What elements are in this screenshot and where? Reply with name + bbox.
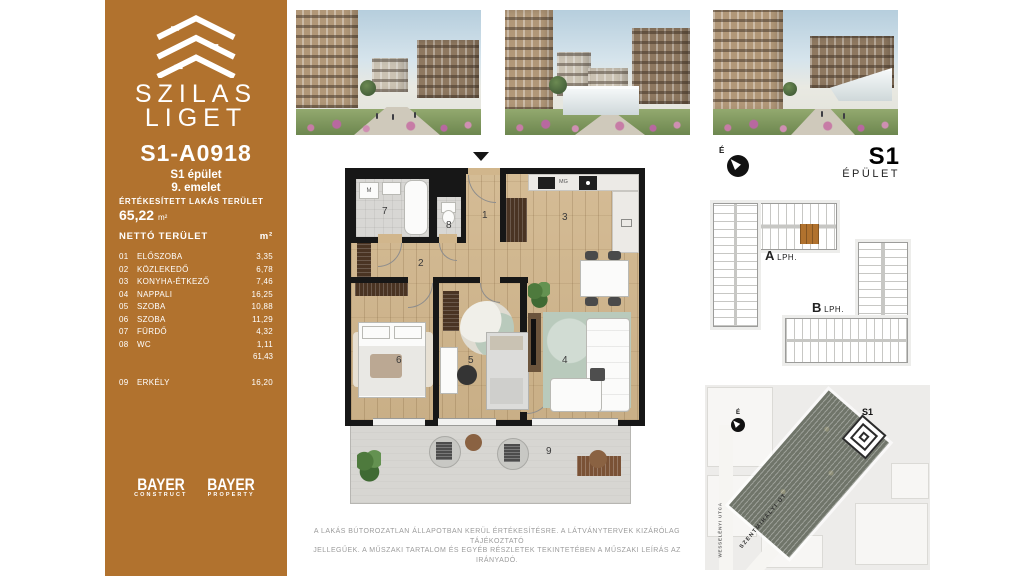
bathroom-sink — [382, 182, 401, 195]
compass-label: É — [719, 146, 724, 155]
stairwell-b-text: LPH. — [824, 305, 844, 314]
entry-wardrobe — [506, 198, 527, 242]
sold-area-unit: m² — [158, 213, 167, 222]
table-row: 01ELŐSZOBA3,35 — [119, 252, 273, 261]
row-area: 10,88 — [239, 302, 273, 311]
map-building — [855, 503, 928, 565]
stairwell-b-letter: B — [812, 300, 821, 315]
apartment-floorplan: M MG — [340, 150, 650, 510]
balcony-round-table — [589, 450, 607, 468]
room-divider-wall — [520, 412, 527, 420]
row-name: WC — [137, 340, 239, 349]
balcony-table — [465, 434, 482, 451]
room5-wardrobe — [443, 291, 459, 331]
bayer-construct-logo: BAYER CONSTRUCT — [132, 477, 190, 499]
row-num: 02 — [119, 265, 137, 274]
building-word: ÉPÜLET — [815, 168, 900, 180]
szilas-liget-roof-logo-icon — [150, 12, 242, 78]
compass-icon — [727, 155, 749, 177]
row-num: 04 — [119, 290, 137, 299]
desk-chair — [457, 365, 477, 385]
room-number-3: 3 — [562, 212, 568, 223]
balcony-door — [532, 418, 618, 426]
stairwell-a-letter: A — [765, 248, 774, 263]
desk — [440, 347, 458, 394]
corridor-wall — [433, 277, 480, 283]
bathroom-door-opening — [378, 234, 402, 243]
room-number-8: 8 — [446, 220, 452, 231]
render-building — [632, 28, 690, 104]
single-bed-pillow — [490, 336, 523, 350]
room-divider-wall — [433, 283, 439, 420]
compass-needle — [728, 156, 741, 170]
site-map: S1 É SZENTMIHÁLYI ÚT WESSELÉNYI UTCA — [705, 385, 930, 570]
highlighted-unit — [800, 224, 819, 244]
row-area: 1,11 — [239, 340, 273, 349]
microwave-label: MG — [559, 179, 568, 185]
lounge-cushion — [504, 444, 520, 462]
render-pavilion — [563, 86, 639, 115]
row-num: 06 — [119, 315, 137, 324]
render-building — [296, 10, 358, 108]
building-code: S1 — [815, 146, 900, 168]
street-label-side: WESSELÉNYI UTCA — [718, 502, 723, 557]
row-area: 6,78 — [239, 265, 273, 274]
room-number-1: 1 — [482, 210, 488, 221]
entrance-arrow-icon — [473, 152, 489, 161]
brand-line2: LIGET — [105, 106, 287, 130]
unit-id: S1-A0918 — [105, 140, 287, 167]
map-marker-label: S1 — [862, 407, 873, 417]
row-num: 09 — [119, 378, 137, 387]
wing-b-horizontal — [785, 318, 908, 363]
dining-chair — [585, 297, 598, 306]
sofa-pillow — [590, 368, 605, 381]
dining-chair — [585, 251, 598, 260]
balcony-door — [438, 418, 496, 426]
pillow — [362, 326, 390, 339]
wc-door-opening — [439, 234, 457, 243]
render-building — [417, 40, 479, 98]
table-row: 04NAPPALI16,25 — [119, 290, 273, 299]
sofa-chaise — [550, 378, 602, 412]
table-row: 03KONYHA-ÉTKEZŐ7,46 — [119, 277, 273, 286]
bayer-property-logo: BAYER PROPERTY — [202, 477, 260, 499]
map-compass-label: É — [736, 410, 740, 416]
sink-dot — [586, 181, 590, 185]
balcony-row: 09ERKÉLY16,20 — [119, 378, 273, 387]
row-name: FÜRDŐ — [137, 327, 239, 336]
table-header-label: NETTÓ TERÜLET — [119, 231, 208, 242]
logo-wordmark: BAYER — [207, 477, 255, 492]
table-row: 08WC1,11 — [119, 340, 273, 349]
logo-wordmark: BAYER — [137, 477, 185, 492]
row-name: KÖZLEKEDŐ — [137, 265, 239, 274]
row-area: 16,20 — [239, 378, 273, 387]
washing-machine: M — [359, 182, 379, 199]
stairwell-b-label: B LPH. — [812, 300, 844, 315]
brand-name: SZILAS LIGET — [105, 82, 287, 130]
building-floor: S1 épület 9. emelet — [105, 169, 287, 195]
room-number-5: 5 — [468, 355, 474, 366]
building-name: S1 épület — [105, 169, 287, 182]
row-name: SZOBA — [137, 315, 239, 324]
row-name: SZOBA — [137, 302, 239, 311]
map-building — [891, 463, 929, 499]
window — [373, 418, 425, 426]
bathtub — [404, 180, 428, 235]
brand-line1: SZILAS — [105, 82, 287, 106]
area-table-header: NETTÓ TERÜLET m² — [119, 231, 273, 242]
wing-a-vertical — [713, 203, 758, 327]
sold-area-number: 65,22 — [119, 207, 154, 223]
row-area: 4,32 — [239, 327, 273, 336]
room-number-2: 2 — [418, 258, 424, 269]
dining-chair — [608, 251, 621, 260]
row-area: 7,46 — [239, 277, 273, 286]
marker-inner-ring — [850, 423, 878, 451]
corridor-wardrobe — [357, 243, 371, 277]
row-num: 03 — [119, 277, 137, 286]
row-area: 16,25 — [239, 290, 273, 299]
exterior-render-3 — [713, 10, 898, 135]
map-compass-icon — [731, 418, 745, 432]
building-title: S1 ÉPÜLET — [815, 146, 900, 180]
pillow — [394, 326, 422, 339]
row-name: NAPPALI — [137, 290, 239, 299]
dining-table — [580, 260, 629, 297]
disclaimer-line2: JELLEGŰEK. A MŰSZAKI TARTALOM ÉS EGYÉB R… — [292, 546, 702, 565]
render-tree — [549, 76, 567, 94]
single-bed-blanket — [490, 378, 523, 404]
dining-chair — [608, 297, 621, 306]
room-number-9: 9 — [546, 446, 552, 457]
room-number-6: 6 — [396, 355, 402, 366]
disclaimer: A LAKÁS BÚTOROZATLAN ÁLLAPOTBAN KERÜL ÉR… — [292, 527, 702, 565]
render-building — [372, 58, 408, 92]
lounge-chair — [429, 436, 461, 468]
plant — [528, 282, 550, 308]
fridge-symbol — [621, 219, 632, 227]
render-tree — [360, 80, 376, 96]
exterior-render-2 — [505, 10, 690, 135]
render-building — [505, 10, 553, 110]
net-area-subtotal: 61,43 — [119, 352, 273, 361]
balcony-plant — [357, 450, 381, 482]
disclaimer-line1: A LAKÁS BÚTOROZATLAN ÁLLAPOTBAN KERÜL ÉR… — [292, 527, 702, 546]
row-name: KONYHA-ÉTKEZŐ — [137, 277, 239, 286]
render-tree — [783, 82, 797, 96]
map-compass-needle — [731, 419, 740, 428]
bedroom-wardrobe — [355, 283, 408, 296]
lounge-cushion — [436, 442, 452, 460]
exterior-render-1 — [296, 10, 481, 135]
stove — [538, 177, 555, 189]
row-num: 05 — [119, 302, 137, 311]
marker-core — [858, 431, 869, 442]
render-flowers — [713, 117, 898, 135]
row-area: 3,35 — [239, 252, 273, 261]
table-row: 05SZOBA10,88 — [119, 302, 273, 311]
row-num: 01 — [119, 252, 137, 261]
balcony — [350, 426, 631, 504]
row-num: 07 — [119, 327, 137, 336]
floor-name: 9. emelet — [105, 182, 287, 195]
lounge-chair — [497, 438, 529, 470]
stairwell-a-label: A LPH. — [765, 248, 797, 263]
row-name: ERKÉLY — [137, 378, 239, 387]
render-flowers — [296, 117, 481, 135]
row-num: 08 — [119, 340, 137, 349]
sold-area-label: ÉRTÉKESÍTETT LAKÁS TERÜLET — [119, 197, 273, 206]
entrance-opening — [468, 168, 500, 175]
render-building — [713, 10, 783, 112]
row-name: ELŐSZOBA — [137, 252, 239, 261]
table-header-unit: m² — [260, 231, 273, 242]
table-row: 02KÖZLEKEDŐ6,78 — [119, 265, 273, 274]
room-number-4: 4 — [562, 355, 568, 366]
stairwell-a-text: LPH. — [777, 253, 797, 262]
tv — [531, 319, 536, 365]
render-flowers — [505, 117, 690, 135]
developer-logos: BAYER CONSTRUCT BAYER PROPERTY — [105, 477, 287, 501]
brand-sidebar: SZILAS LIGET S1-A0918 S1 épület 9. emele… — [105, 0, 287, 576]
sold-area-value: 65,22 m² — [119, 207, 273, 223]
table-row: 06SZOBA11,29 — [119, 315, 273, 324]
room-number-7: 7 — [382, 206, 388, 217]
row-area: 11,29 — [239, 315, 273, 324]
table-row: 07FÜRDŐ4,32 — [119, 327, 273, 336]
